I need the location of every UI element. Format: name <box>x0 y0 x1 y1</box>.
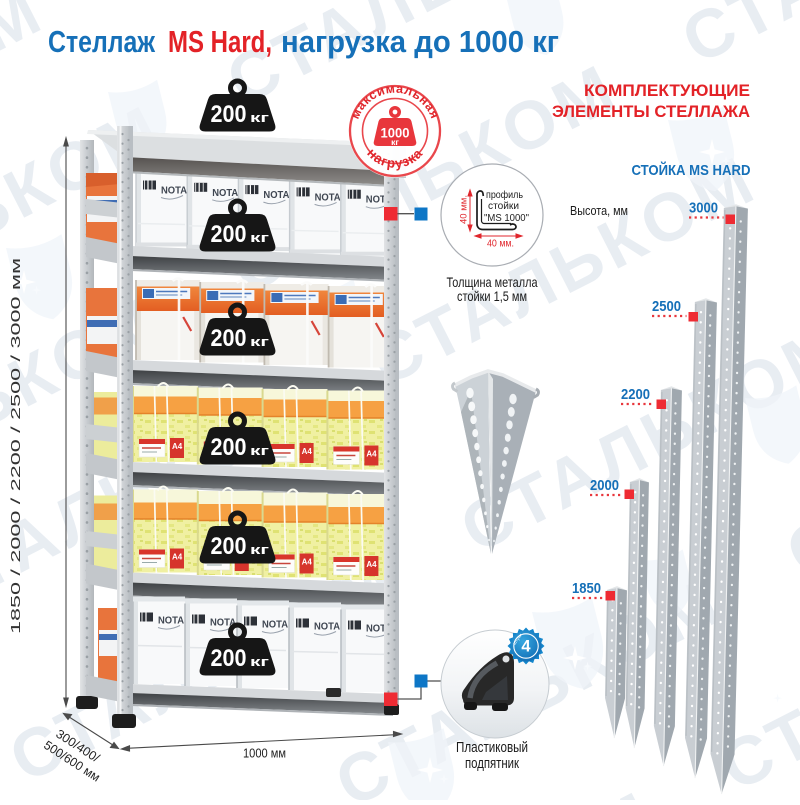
svg-text:СТОЙКА MS HARD: СТОЙКА MS HARD <box>632 161 751 179</box>
svg-text:NOTA: NOTA <box>263 189 289 201</box>
svg-text:A4: A4 <box>172 553 183 562</box>
svg-text:кг: кг <box>391 137 399 147</box>
svg-text:NOTA: NOTA <box>315 191 341 203</box>
svg-text:NOTA: NOTA <box>262 619 288 631</box>
svg-text:A4: A4 <box>172 442 183 451</box>
svg-text:A4: A4 <box>366 560 377 569</box>
svg-text:40 мм.: 40 мм. <box>459 195 470 224</box>
svg-text:ЭЛЕМЕНТЫ СТЕЛЛАЖА: ЭЛЕМЕНТЫ СТЕЛЛАЖА <box>552 102 750 121</box>
svg-text:подпятник: подпятник <box>465 755 519 772</box>
svg-text:Пластиковый: Пластиковый <box>456 739 528 756</box>
svg-text:1000 мм: 1000 мм <box>243 746 286 761</box>
svg-text:КОМПЛЕКТУЮЩИЕ: КОМПЛЕКТУЮЩИЕ <box>584 81 750 100</box>
svg-text:NOTA: NOTA <box>314 621 340 633</box>
svg-text:40 мм.: 40 мм. <box>487 238 514 250</box>
svg-text:2000: 2000 <box>590 477 619 494</box>
svg-text:4: 4 <box>521 638 531 656</box>
svg-text:NOTA: NOTA <box>161 185 187 197</box>
svg-text:1850: 1850 <box>572 580 601 597</box>
svg-text:NOTA: NOTA <box>158 615 184 627</box>
svg-text:2200: 2200 <box>621 386 650 403</box>
svg-text:2500: 2500 <box>652 298 681 315</box>
svg-text:стойки: стойки <box>488 201 519 212</box>
svg-text:A4: A4 <box>302 447 313 456</box>
svg-text:профиль: профиль <box>486 189 523 201</box>
svg-text:3000: 3000 <box>689 200 718 217</box>
svg-text:A4: A4 <box>302 558 313 567</box>
svg-text:1850 / 2000 / 2200 / 2500 / 30: 1850 / 2000 / 2200 / 2500 / 3000 мм <box>9 258 23 634</box>
svg-text:Высота, мм: Высота, мм <box>570 203 628 218</box>
svg-text:стойки 1,5 мм: стойки 1,5 мм <box>457 288 527 304</box>
svg-text:СтеллажMS Hard,нагрузка до 100: СтеллажMS Hard,нагрузка до 1000 кг <box>48 24 559 59</box>
svg-text:NOTA: NOTA <box>212 187 238 199</box>
svg-text:A4: A4 <box>366 450 377 459</box>
svg-text:"MS 1000": "MS 1000" <box>484 213 529 224</box>
